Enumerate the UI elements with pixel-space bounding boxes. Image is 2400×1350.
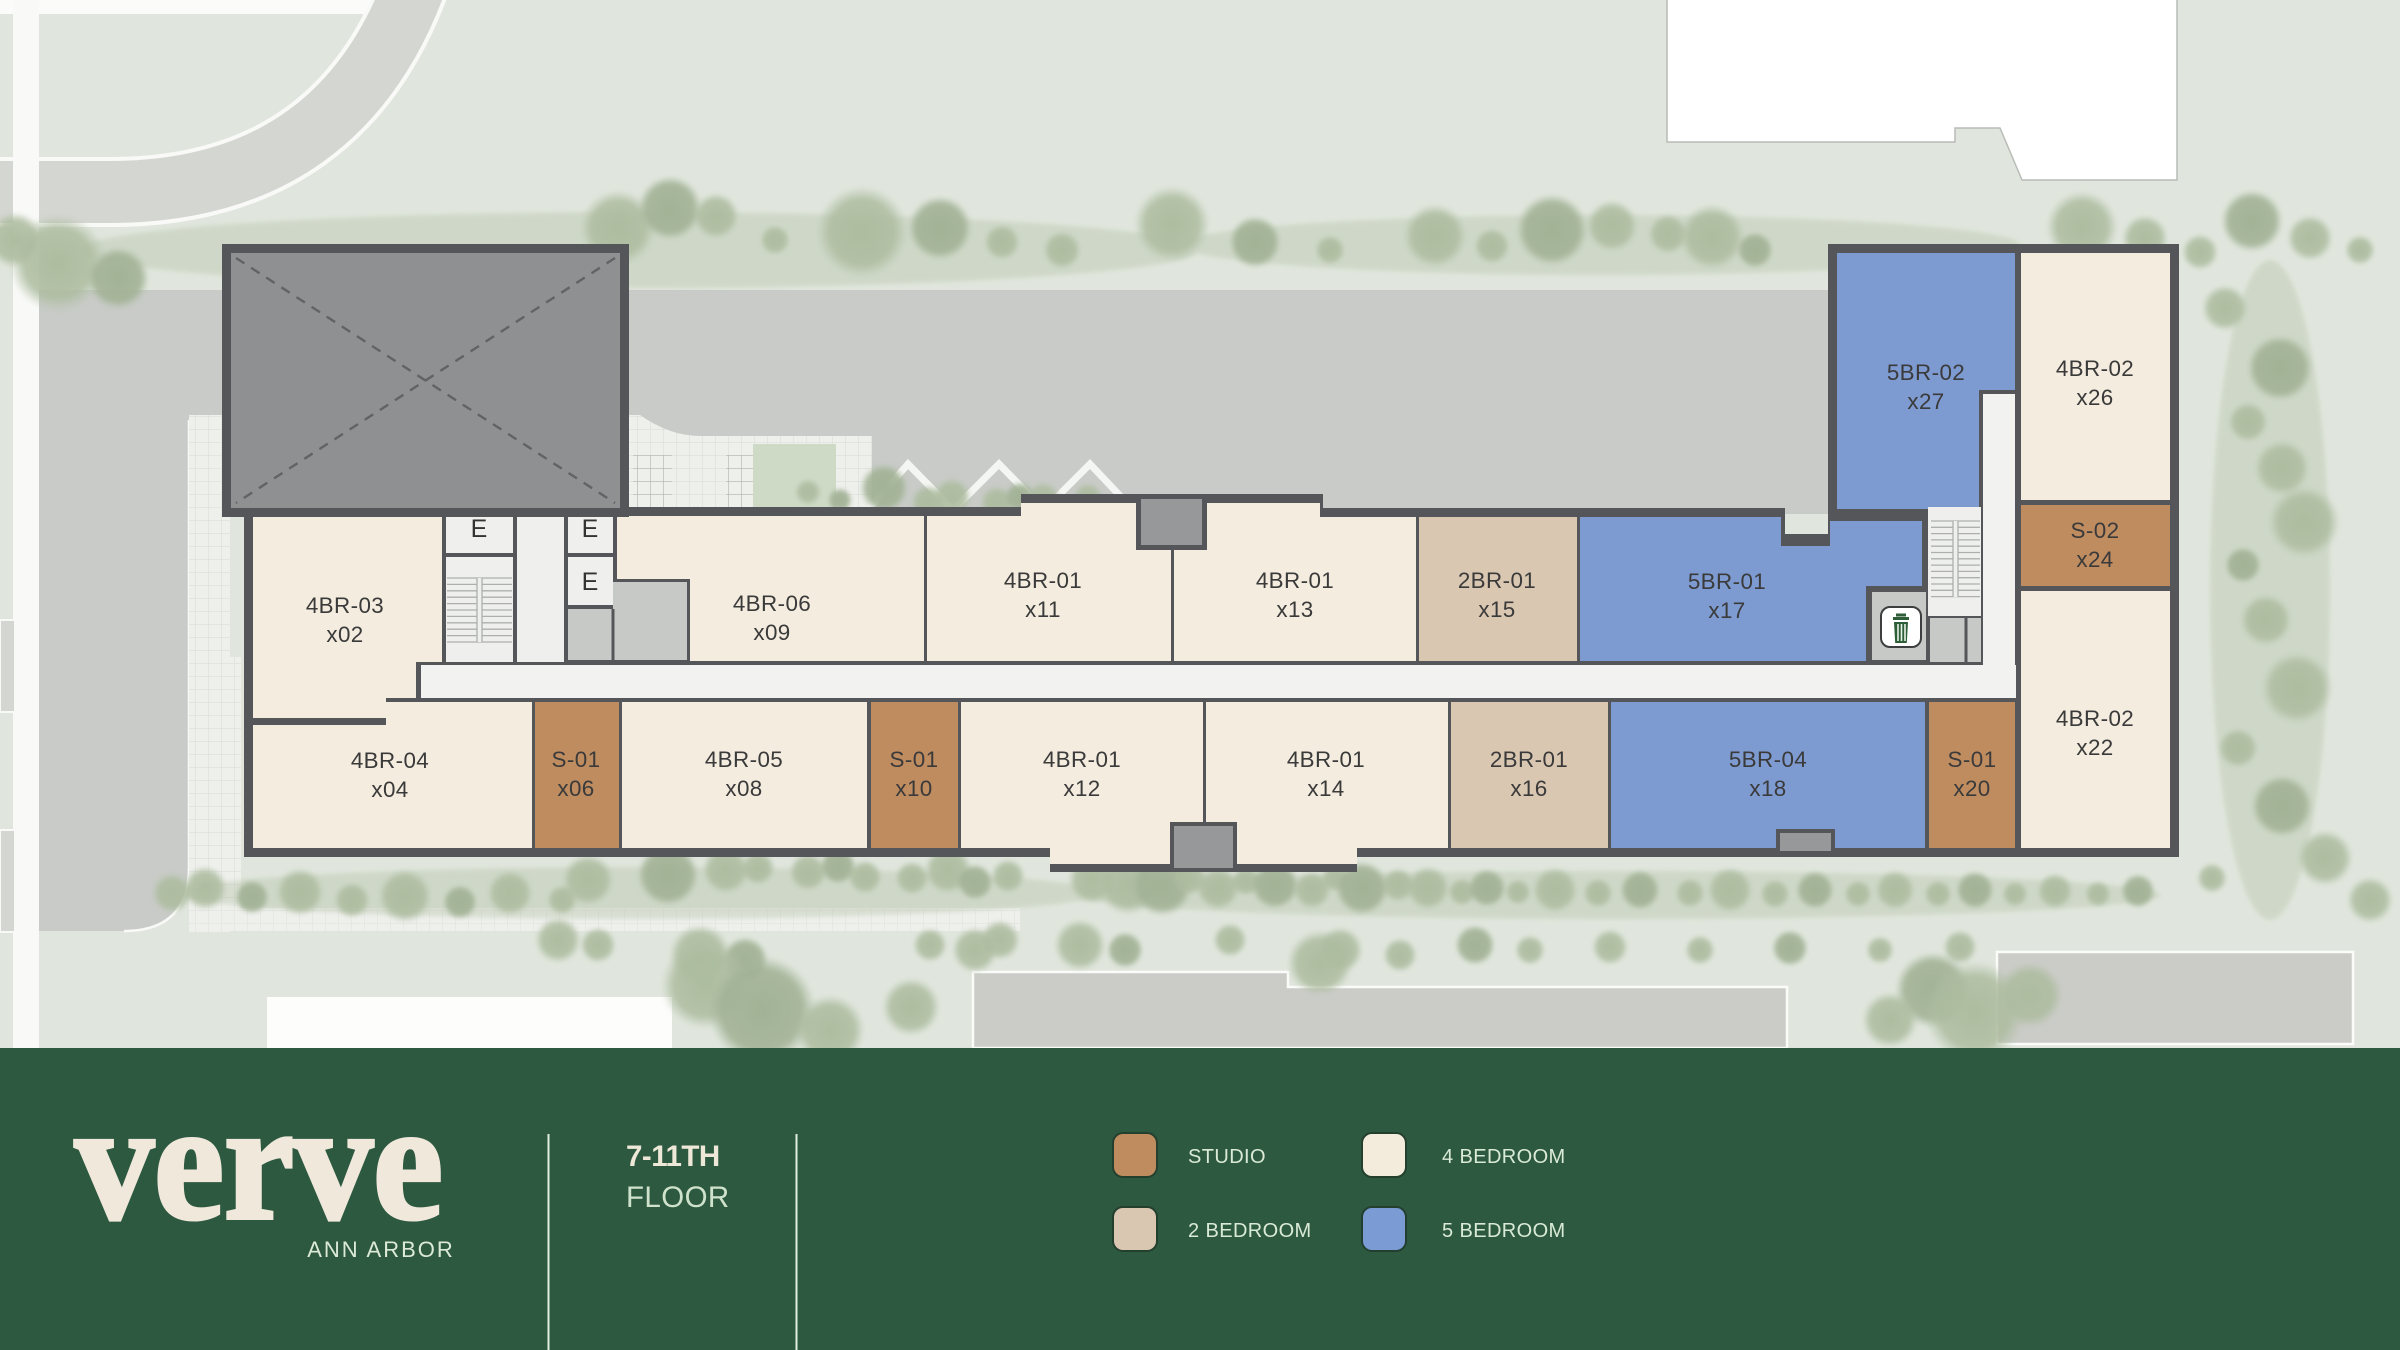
- svg-text:4BR-01: 4BR-01: [1256, 568, 1334, 593]
- svg-text:x22: x22: [2076, 735, 2113, 760]
- svg-text:x06: x06: [557, 776, 594, 801]
- svg-text:x13: x13: [1276, 597, 1313, 622]
- svg-text:2BR-01: 2BR-01: [1458, 568, 1536, 593]
- svg-text:x18: x18: [1749, 776, 1786, 801]
- svg-text:4BR-01: 4BR-01: [1287, 747, 1365, 772]
- svg-text:2BR-01: 2BR-01: [1490, 747, 1568, 772]
- svg-text:x08: x08: [725, 776, 762, 801]
- svg-text:S-01: S-01: [552, 747, 601, 772]
- svg-text:x02: x02: [326, 622, 363, 647]
- svg-text:5 BEDROOM: 5 BEDROOM: [1442, 1220, 1566, 1242]
- svg-text:FLOOR: FLOOR: [626, 1181, 730, 1214]
- svg-text:7-11TH: 7-11TH: [626, 1140, 720, 1173]
- svg-text:STUDIO: STUDIO: [1188, 1146, 1266, 1168]
- svg-text:2 BEDROOM: 2 BEDROOM: [1188, 1220, 1312, 1242]
- svg-text:E: E: [582, 568, 599, 596]
- svg-text:x12: x12: [1063, 776, 1100, 801]
- svg-text:x16: x16: [1510, 776, 1547, 801]
- svg-text:x27: x27: [1907, 389, 1944, 414]
- svg-text:x14: x14: [1307, 776, 1344, 801]
- svg-text:x15: x15: [1478, 597, 1515, 622]
- svg-text:4BR-05: 4BR-05: [705, 747, 783, 772]
- svg-text:E: E: [471, 515, 488, 543]
- svg-text:S-01: S-01: [890, 747, 939, 772]
- svg-text:x09: x09: [753, 620, 790, 645]
- svg-text:4 BEDROOM: 4 BEDROOM: [1442, 1146, 1566, 1168]
- svg-text:4BR-03: 4BR-03: [306, 593, 384, 618]
- svg-text:4BR-04: 4BR-04: [351, 748, 429, 773]
- svg-text:S-01: S-01: [1948, 747, 1997, 772]
- svg-text:S-02: S-02: [2071, 518, 2120, 543]
- svg-text:4BR-06: 4BR-06: [733, 591, 811, 616]
- svg-text:x10: x10: [895, 776, 932, 801]
- svg-text:5BR-01: 5BR-01: [1688, 569, 1766, 594]
- svg-text:4BR-01: 4BR-01: [1004, 568, 1082, 593]
- svg-text:5BR-02: 5BR-02: [1887, 360, 1965, 385]
- svg-text:x20: x20: [1953, 776, 1990, 801]
- svg-text:x04: x04: [371, 777, 408, 802]
- svg-text:4BR-01: 4BR-01: [1043, 747, 1121, 772]
- svg-text:x26: x26: [2076, 385, 2113, 410]
- svg-text:x11: x11: [1025, 597, 1061, 622]
- svg-text:ANN ARBOR: ANN ARBOR: [307, 1237, 455, 1262]
- svg-text:verve: verve: [75, 1069, 443, 1255]
- svg-text:x24: x24: [2076, 547, 2113, 572]
- svg-text:5BR-04: 5BR-04: [1729, 747, 1807, 772]
- svg-text:4BR-02: 4BR-02: [2056, 706, 2134, 731]
- svg-text:E: E: [582, 515, 599, 543]
- svg-text:x17: x17: [1708, 598, 1745, 623]
- svg-text:4BR-02: 4BR-02: [2056, 356, 2134, 381]
